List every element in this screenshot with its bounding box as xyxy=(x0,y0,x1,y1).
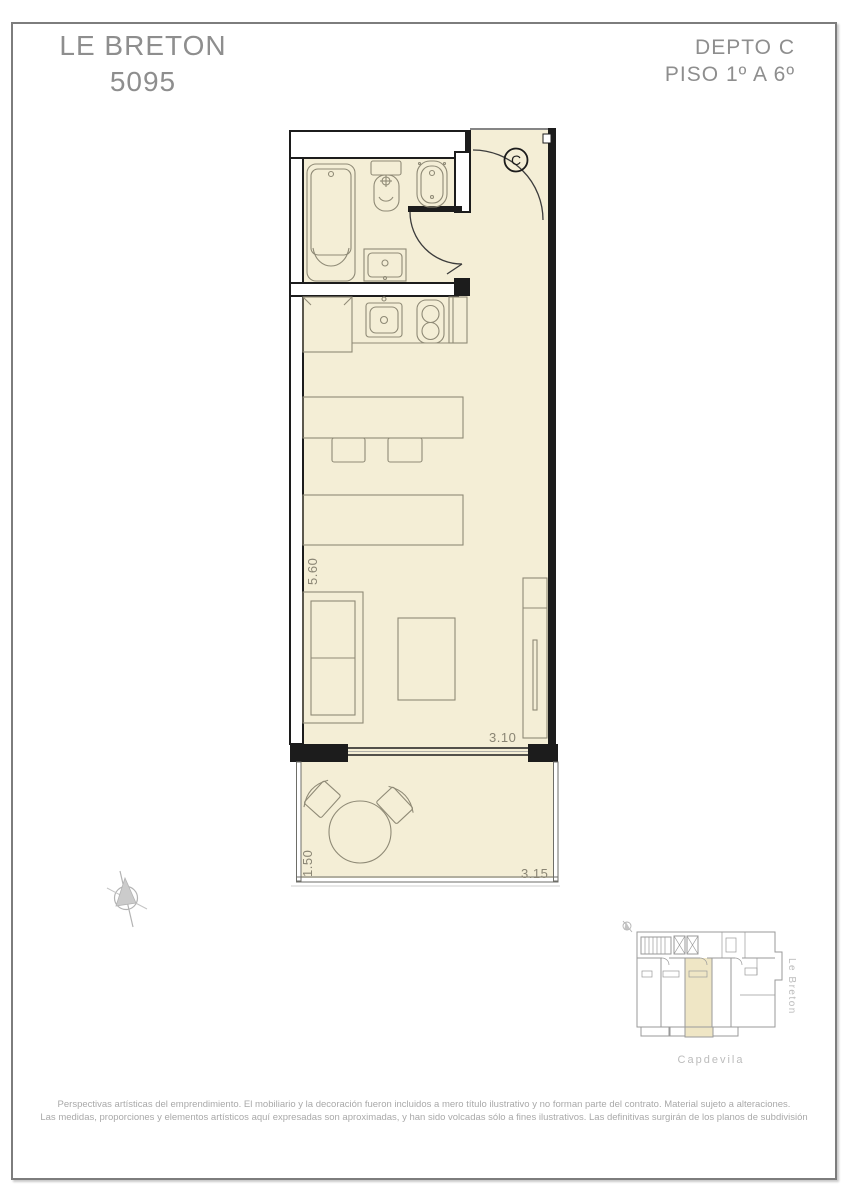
elevators xyxy=(674,936,698,954)
floor-plan-drawing: C xyxy=(0,0,848,1200)
key-plan: Le Breton Capdevila xyxy=(623,921,797,1066)
north-arrow-icon xyxy=(107,871,147,927)
highlighted-balcony xyxy=(685,1027,713,1037)
street-label-capdevila: Capdevila xyxy=(678,1054,745,1066)
street-label-le-breton: Le Breton xyxy=(786,958,797,1015)
highlighted-unit xyxy=(685,958,712,1027)
window-pier-left xyxy=(290,744,348,762)
dimension-living-width: 3.10 xyxy=(489,730,516,745)
window-pier-right xyxy=(528,744,558,762)
disclaimer-line2: Las medidas, proporciones y elementos ar… xyxy=(0,1112,848,1125)
balcony-rail-right xyxy=(554,762,559,881)
key-plan-north-arrow-icon xyxy=(623,921,632,932)
disclaimer: Perspectivas artísticas del emprendimien… xyxy=(0,1099,848,1124)
unit-circle-label: C xyxy=(511,152,521,168)
stairs xyxy=(641,937,671,954)
balcony-table xyxy=(329,801,391,863)
dimension-balcony-width: 3.15 xyxy=(521,866,548,881)
plan-sheet: LE BRETON 5095 DEPTO C PISO 1º A 6º xyxy=(0,0,848,1200)
disclaimer-line1: Perspectivas artísticas del emprendimien… xyxy=(0,1099,848,1112)
dimension-living-depth: 5.60 xyxy=(305,558,320,585)
dimension-balcony-depth: 1.50 xyxy=(300,850,315,877)
apartment-floor xyxy=(296,130,552,762)
